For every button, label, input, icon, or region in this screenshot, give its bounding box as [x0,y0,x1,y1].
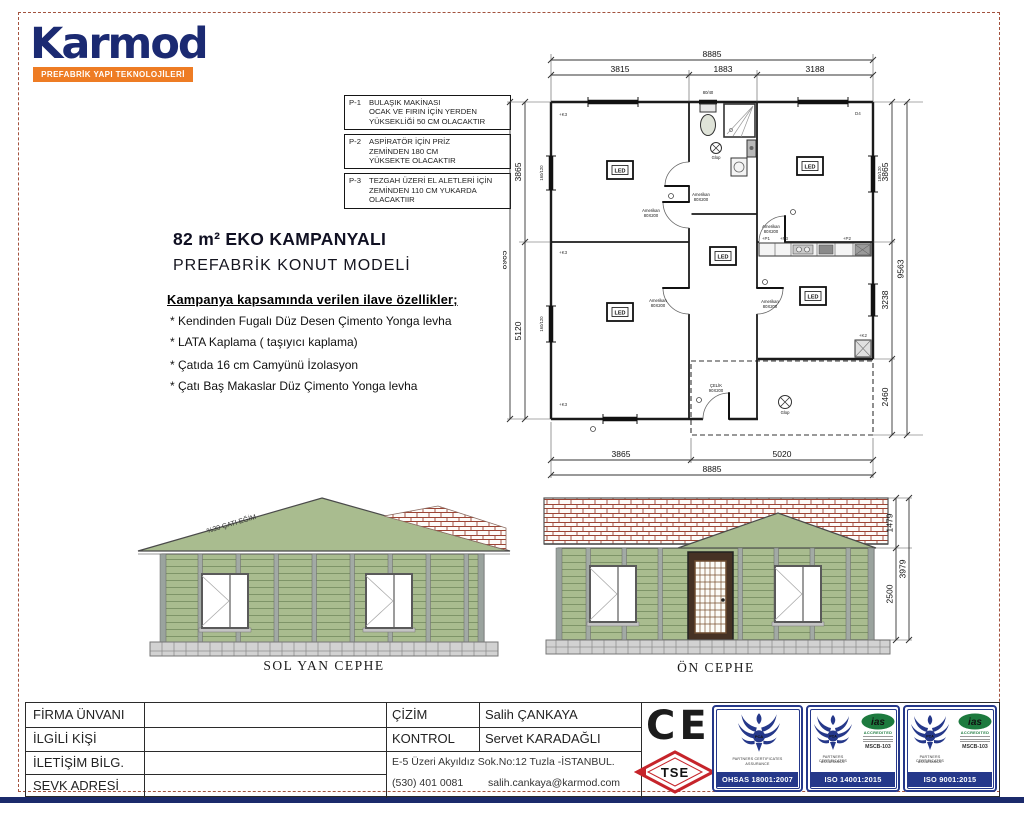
note-p1-line2: OCAK VE FIRIN İÇİN YERDEN [369,107,507,116]
pca-text: PCA [755,734,763,739]
badge-ohsas-name: OHSAS 18001:2007 [717,772,798,787]
socket-mark: +P3 [780,236,789,241]
window [363,574,415,632]
dim-left-seg: 3865 [513,162,523,181]
window-dim-label: 80/40 [703,90,714,95]
company-phone: (530) 401 0081 [392,777,463,789]
switch-mark: +K3 [559,250,568,255]
campaign-features: Kampanya kapsamında verilen ilave özelli… [167,292,458,393]
badge-iso14001-name: ISO 14001:2015 [811,772,895,787]
door-label: 80X200 [764,229,779,234]
ias-oval-icon: ias [958,713,992,730]
feature-item: * Çatı Baş Makaslar Düz Çimento Yonga le… [167,379,458,393]
window [587,566,639,626]
sheet-bottom-band [0,797,1024,803]
note-p2-line3: YÜKSEKTE OLACAKTIR [369,156,507,165]
dim-right-seg: 3238 [880,290,890,309]
note-p3-id: P-3 [349,176,369,185]
entry-door-label: 90X200 [709,388,724,393]
bathroom-fixtures: Glop [700,104,756,176]
dim-roof-height: 1479 [885,513,895,532]
badge-iso9001-name: ISO 9001:2015 [908,772,992,787]
corner-unit: +K2 [855,333,871,357]
lamp-label: Glop [712,155,722,160]
window [772,566,824,626]
cizim-label: ÇİZİM [392,703,427,727]
dim-top-seg: 3188 [806,64,825,74]
certificate-emblem-icon: PCA [737,712,781,754]
plinth [546,640,890,654]
dim-left-seg: 5120 [513,321,523,340]
note-p2-id: P-2 [349,137,369,146]
model-title: 82 m² EKO KAMPANYALI PREFABRİK KONUT MOD… [173,229,411,275]
door-label: 80X200 [694,197,709,202]
terrace-outline [691,361,873,435]
door-label: 80X200 [644,213,659,218]
feature-item: * Çatıda 16 cm Camyünü İzolasyon [167,358,458,372]
note-p2-line1: ASPİRATÖR İÇİN PRİZ [369,137,450,146]
certificate-emblem-icon: PCA [813,714,853,752]
dim-top-seg: 1883 [714,64,733,74]
note-p3: P-3TEZGAH ÜZERİ EL ALETLERİ İÇİN ZEMİNDE… [344,173,511,208]
karmod-logo: Karmod PREFABRİK YAPI TEKNOLOJİLERİ [30,22,207,82]
led-label: LED [615,311,626,317]
note-p3-line1: TEZGAH ÜZERİ EL ALETLERİ İÇİN [369,176,492,185]
socket-mark: +P2 [843,236,852,241]
led-label: LED [808,295,819,301]
plinth [150,642,498,656]
ias-fine-print [956,736,994,742]
note-p1-line3: YÜKSEKLİĞİ 50 CM OLACAKTIR [369,117,507,126]
row-label-sevk: SEVK ADRESİ [33,774,119,798]
pca-text: PCA [829,735,837,739]
accredited-text: ACCREDITED [859,730,897,735]
company-address: E-5 Üzeri Akyıldız Sok.No:12 Tuzla -İSTA… [392,756,615,768]
dim-bottom-total: 8885 [703,464,722,474]
socket-mark: +P1 [762,236,771,241]
dim-wall-height: 2500 [885,584,895,603]
tse-logo: TSE [634,750,716,794]
model-title-line2: PREFABRİK KONUT MODELİ [173,257,411,275]
toilet-tank [700,104,716,112]
switch-mark: D4 [855,111,861,116]
campaign-features-heading: Kampanya kapsamında verilen ilave özelli… [167,292,458,307]
kontrol-value: Servet KARADAĞLI [485,727,601,751]
toilet-bowl [701,115,716,136]
window-dim-label: 160/120 [539,316,544,332]
plan-doors [663,162,785,422]
row-label-firma: FİRMA ÜNVANI [33,703,125,727]
led-label: LED [615,169,626,175]
dim-right-seg: 3865 [880,162,890,181]
partner-text: ASSURANCE [810,760,856,764]
badge-iso9001: PCA PARTNERS CERTIFICATES ASSURANCE ias … [903,705,997,792]
terrace-lamp: Glop [779,396,792,416]
mscb-code: MSCB-103 [859,744,897,750]
plan-notes: P-1BULAŞIK MAKİNASI OCAK VE FIRIN İÇİN Y… [344,95,511,213]
karmod-logo-banner: PREFABRİK YAPI TEKNOLOJİLERİ [33,67,193,82]
ce-mark: CE [646,706,711,746]
led-lights: LED LED LED LED LED [607,157,826,321]
karmod-logo-tagline: PREFABRİK YAPI TEKNOLOJİLERİ [33,67,193,82]
partner-text: ASSURANCE [714,762,801,766]
water-heater [731,158,747,176]
entrance-door [688,552,733,640]
ias-oval-icon: ias [861,713,895,730]
door-label: 80X200 [763,304,778,309]
door-labels: Amerikan 80X200 Amerikan 80X200 Amerikan… [642,192,780,393]
feature-item: * LATA Kaplama ( taşıyıcı kaplama) [167,335,458,349]
partner-text: PARTNERS CERTIFICATES [714,757,801,761]
lamp-label: Glop [781,410,791,415]
badge-ohsas: PCA PARTNERS CERTIFICATES ASSURANCE OHSA… [712,705,803,792]
certificate-emblem-icon: PCA [910,714,950,752]
feature-item: * Kendinden Fugalı Düz Desen Çimento Yon… [167,314,458,328]
row-label-ilgili: İLGİLİ KİŞİ [33,727,97,751]
mscb-code: MSCB-103 [956,744,994,750]
left-elevation-label: SOL YAN CEPHE [263,658,384,673]
dim-left-total: 8985 [503,250,509,269]
kitchen-sink [793,245,813,254]
kitchen-counter: +P1 +P3 +P2 [759,236,871,256]
karmod-logo-text: Karmod [30,22,207,66]
tse-text: TSE [661,765,689,780]
note-p2-line2: ZEMİNDEN 180 CM [369,147,507,156]
company-email: salih.cankaya@karmod.com [488,777,620,789]
dim-right-total: 9563 [896,259,906,278]
led-label: LED [718,255,729,261]
cizim-value: Salih ÇANKAYA [485,703,578,727]
dim-total-height: 3979 [898,559,908,578]
window [199,574,251,632]
left-elevation: %30 ÇATI EĞİM SOL YAN CEPHE [132,490,532,675]
front-elevation-label: ÖN CEPHE [677,660,755,675]
switch-mark: +K3 [559,402,568,407]
kontrol-label: KONTROL [392,727,455,751]
window-dim-label: 160/120 [539,165,544,181]
row-label-iletisim: İLETİŞİM BİLG. [33,751,124,775]
badge-iso14001: PCA PARTNERS CERTIFICATES ASSURANCE ias … [806,705,900,792]
ias-fine-print [859,736,897,742]
ias-accredited-logo: ias ACCREDITED MSCB-103 [859,713,897,750]
note-p3-line3: OLACAKTIIR [369,195,507,204]
ias-text: ias [968,717,982,728]
k2-mark: +K2 [859,333,868,338]
note-p3-line2: ZEMİNDEN 110 CM YUKARDA [369,186,507,195]
dim-top-seg: 3815 [611,64,630,74]
front-elevation: 1479 2500 3979 ÖN CEPHE [538,486,942,678]
drawing-sheet: { "colors": {"navy":"#1b2a6e","orange":"… [0,0,1024,813]
accredited-text: ACCREDITED [956,730,994,735]
pca-text: PCA [926,735,934,739]
door-label: 80X200 [651,303,666,308]
note-p1: P-1BULAŞIK MAKİNASI OCAK VE FIRIN İÇİN Y… [344,95,511,130]
ias-accredited-logo: ias ACCREDITED MSCB-103 [956,713,994,750]
floor-plan: 160/120 160/120 180/120 80/40 Amerikan 8… [503,44,927,490]
note-p2: P-2ASPİRATÖR İÇİN PRİZ ZEMİNDEN 180 CM Y… [344,134,511,169]
dim-right-seg: 2460 [880,387,890,406]
note-p1-line1: BULAŞIK MAKİNASI [369,98,440,107]
model-title-line1: 82 m² EKO KAMPANYALI [173,229,411,250]
switch-mark: +K3 [559,112,568,117]
dim-top-total: 8885 [703,49,722,59]
led-label: LED [805,165,816,171]
dim-bottom-seg: 5020 [773,449,792,459]
stove [819,245,833,254]
dim-bottom-seg: 3865 [612,449,631,459]
partner-text: ASSURANCE [907,760,953,764]
extension-lines [507,54,923,478]
ias-text: ias [871,717,885,728]
note-p1-id: P-1 [349,98,369,107]
